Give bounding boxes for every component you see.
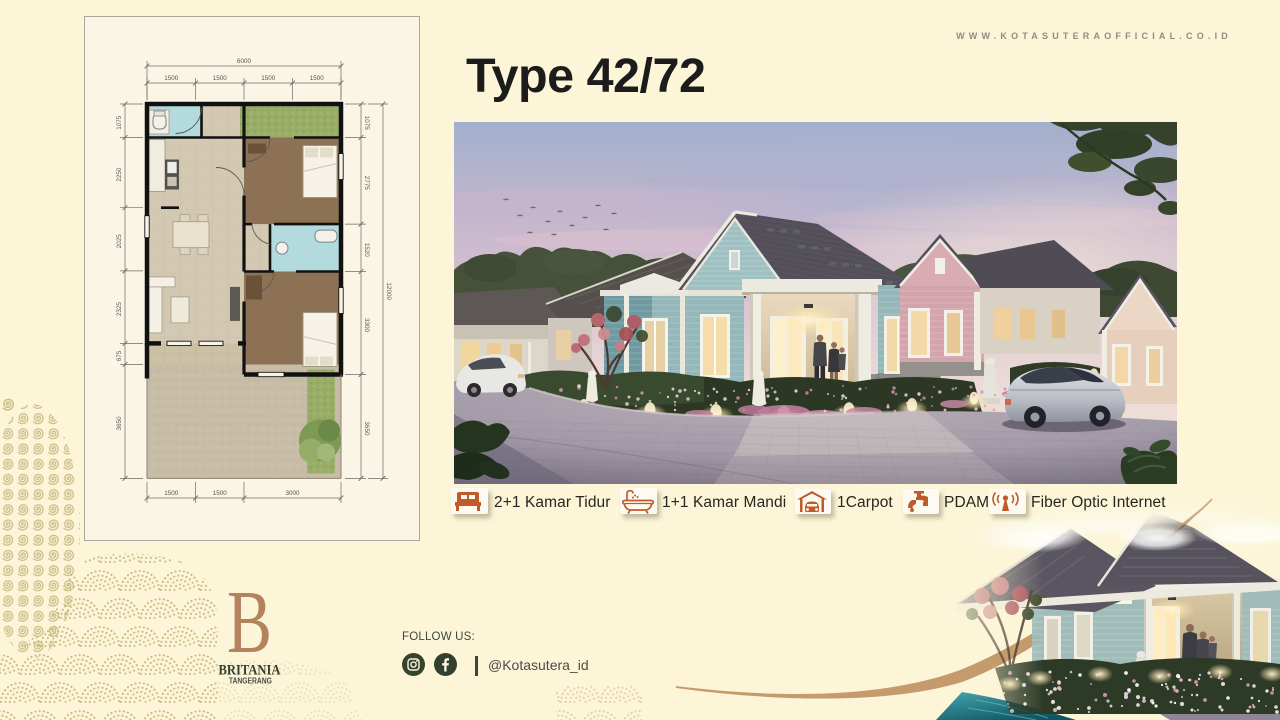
svg-text:1075: 1075 [363, 116, 370, 131]
svg-text:6000: 6000 [237, 58, 252, 65]
svg-text:1500: 1500 [164, 490, 179, 497]
svg-text:1075: 1075 [116, 115, 123, 130]
svg-text:1500: 1500 [213, 490, 228, 497]
svg-text:B: B [227, 584, 272, 672]
svg-text:3650: 3650 [116, 416, 123, 431]
svg-text:2025: 2025 [116, 234, 123, 249]
svg-text:2775: 2775 [363, 176, 370, 191]
svg-text:1520: 1520 [363, 243, 370, 258]
svg-text:3000: 3000 [285, 490, 300, 497]
svg-text:1500: 1500 [310, 75, 325, 82]
svg-text:1500: 1500 [164, 75, 179, 82]
svg-text:2250: 2250 [116, 167, 123, 182]
svg-text:3650: 3650 [363, 421, 370, 436]
svg-text:1500: 1500 [261, 75, 276, 82]
svg-text:1500: 1500 [213, 75, 228, 82]
svg-text:12000: 12000 [385, 282, 392, 300]
svg-text:3300: 3300 [363, 318, 370, 333]
svg-text:2325: 2325 [116, 302, 123, 317]
svg-text:675: 675 [116, 350, 123, 361]
svg-text:TANGERANG: TANGERANG [229, 677, 272, 686]
